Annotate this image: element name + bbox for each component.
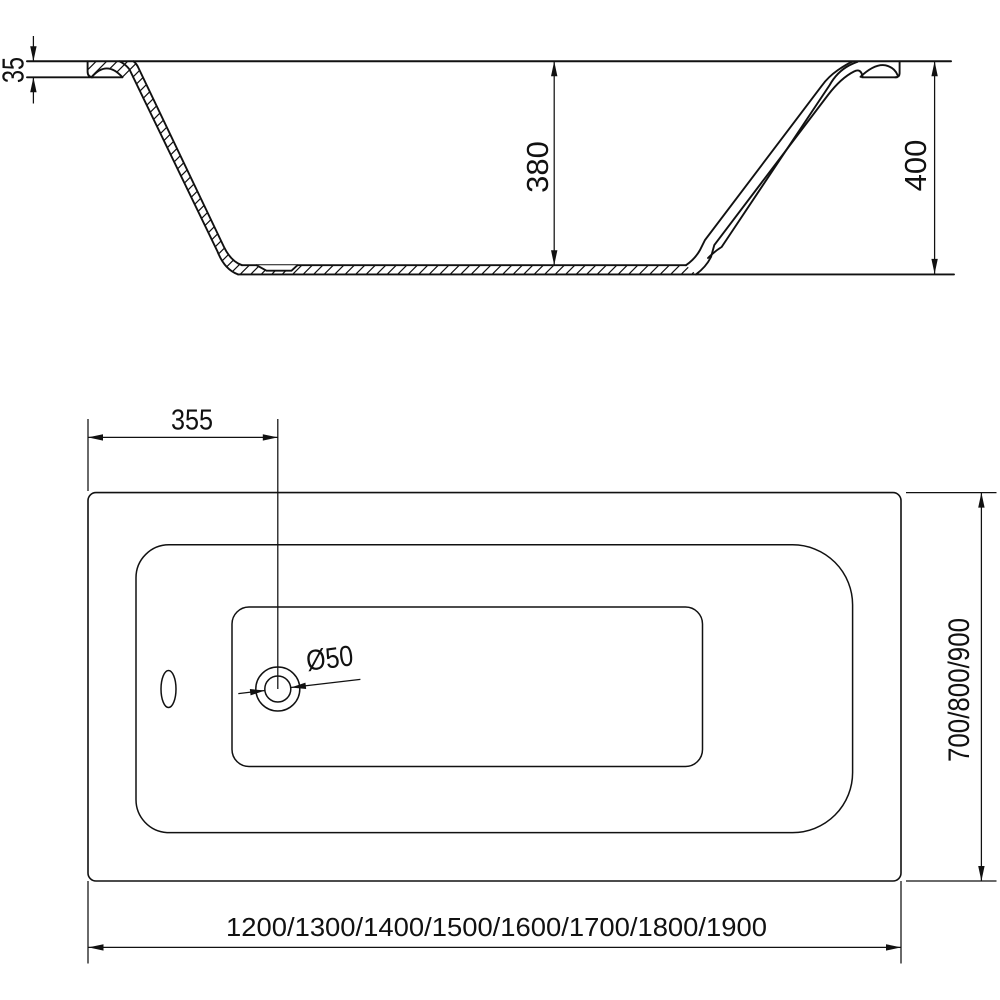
svg-text:35: 35 <box>0 57 31 83</box>
svg-text:700/800/900: 700/800/900 <box>943 618 976 762</box>
svg-text:355: 355 <box>171 405 213 437</box>
svg-text:380: 380 <box>520 141 555 193</box>
svg-text:400: 400 <box>898 140 933 192</box>
svg-text:1200/1300/1400/1500/1600/1700/: 1200/1300/1400/1500/1600/1700/1800/1900 <box>226 912 767 942</box>
svg-text:Ø50: Ø50 <box>304 640 355 677</box>
